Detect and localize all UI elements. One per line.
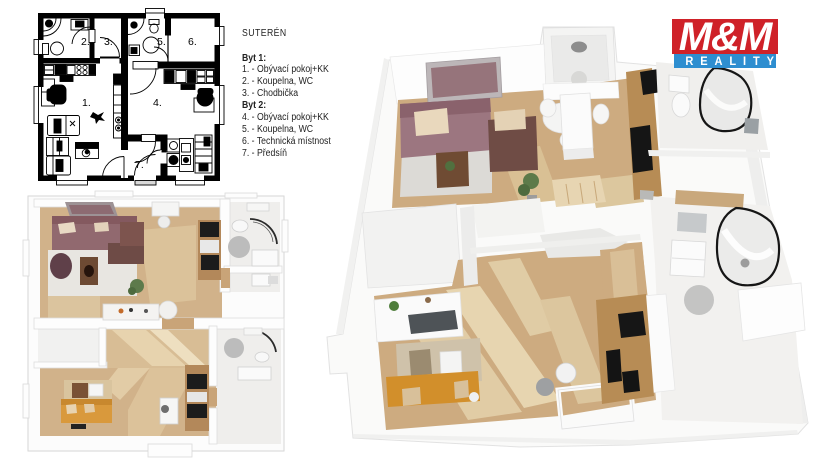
svg-text:4.: 4.	[153, 97, 162, 109]
svg-text:3.: 3.	[104, 36, 113, 48]
svg-text:1.: 1.	[82, 97, 91, 109]
svg-text:2.: 2.	[81, 36, 90, 48]
svg-text:6.: 6.	[188, 36, 197, 48]
svg-text:5.: 5.	[157, 36, 166, 48]
svg-text:7.: 7.	[135, 159, 144, 171]
